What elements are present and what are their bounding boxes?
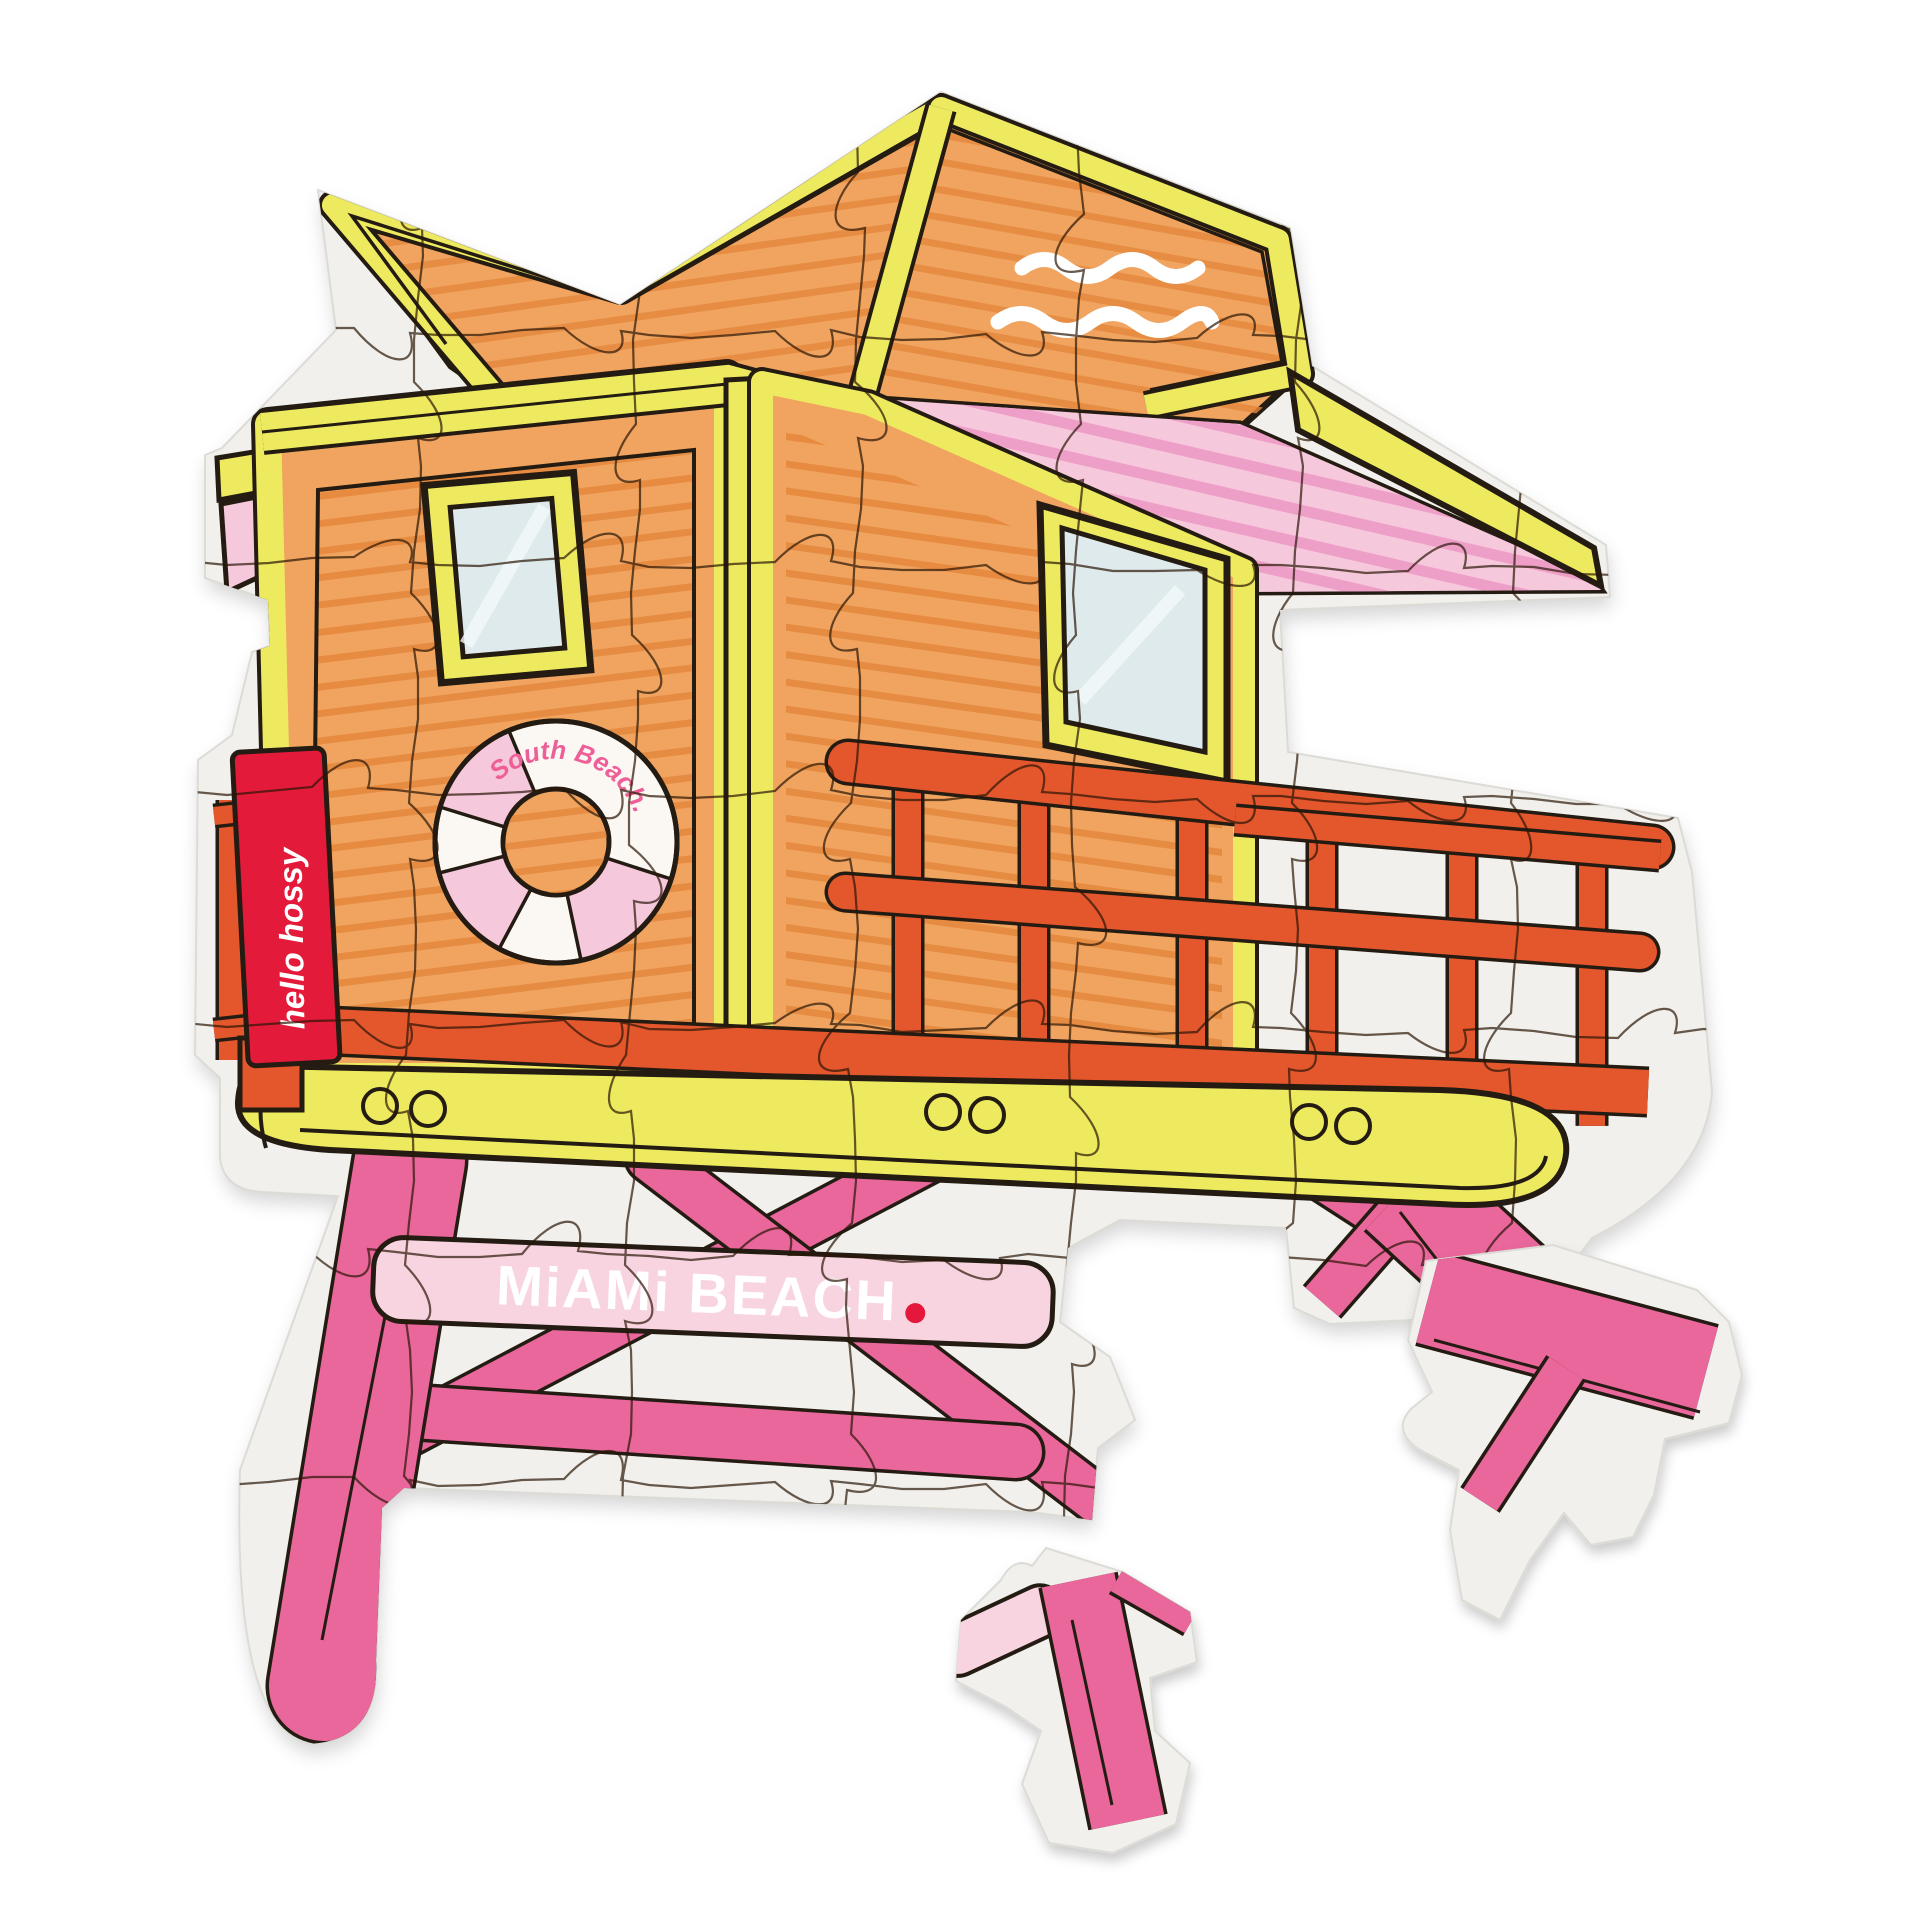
svg-text:hello hossy: hello hossy <box>271 846 311 1030</box>
